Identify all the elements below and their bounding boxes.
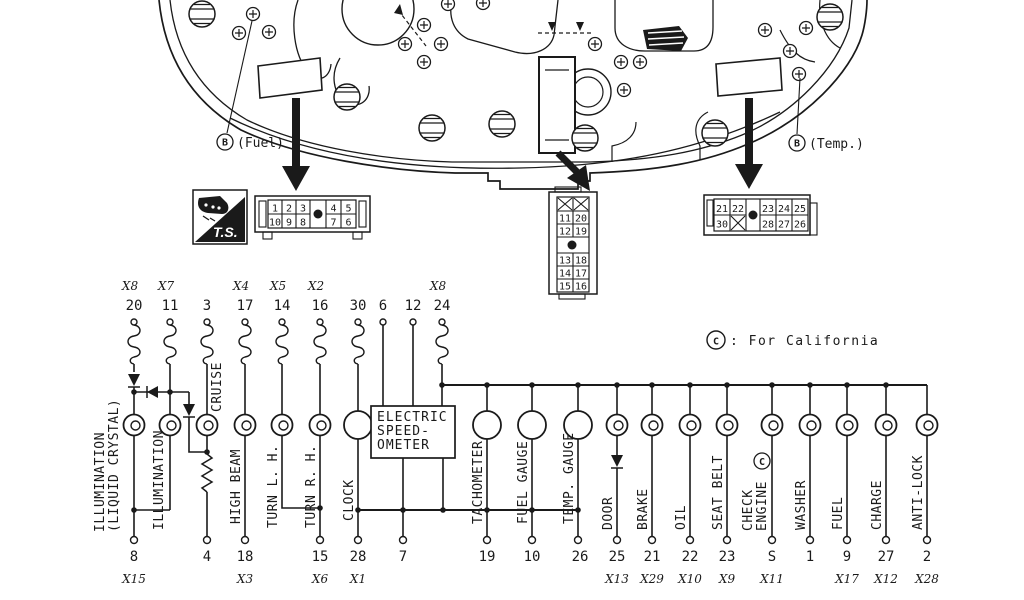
- connector-c-pinout: 21 22 23 24 25 30 28 27 26: [704, 195, 817, 235]
- circuit-label: BRAKE: [636, 488, 651, 530]
- screw-icon: [589, 38, 602, 51]
- pin-cell: 23: [762, 204, 774, 215]
- pin-cell: 27: [778, 220, 790, 231]
- gauge-icon: [344, 411, 372, 439]
- doodle-dot: [211, 205, 214, 208]
- pin-cell: 10: [269, 218, 281, 229]
- bulb-socket-icon: [817, 4, 843, 30]
- pin-cell: 15: [559, 282, 571, 293]
- lamp-icon: [837, 415, 858, 436]
- ts-badge-label: T.S.: [213, 224, 238, 240]
- pin-cell: 21: [716, 204, 728, 215]
- connector-code: X8: [429, 279, 447, 293]
- pin-cell: 12: [559, 227, 571, 238]
- coil-icon: [436, 325, 448, 364]
- california-symbol: C: [713, 337, 719, 348]
- diode-icon: [128, 374, 140, 386]
- circuit-label: TACHOMETER: [471, 441, 486, 524]
- right-connector-opening: [716, 58, 782, 96]
- coil-icon: [276, 325, 288, 364]
- pin-cell: 22: [732, 204, 744, 215]
- speedometer-box: ELECTRIC SPEED- OMETER: [371, 406, 455, 458]
- pin-cell: 3: [300, 204, 306, 215]
- fuel-tag-label: (Fuel): [237, 136, 284, 151]
- connector-code: X7: [157, 279, 175, 293]
- pin-cell: 18: [575, 256, 587, 267]
- lamp-icon: [876, 415, 897, 436]
- pin-number: 4: [203, 549, 211, 565]
- connector-code: X2: [307, 279, 324, 293]
- pin-number: 24: [434, 298, 451, 314]
- bulb-socket-icon: [572, 125, 598, 151]
- screw-icon: [435, 38, 448, 51]
- doodle-dot: [217, 206, 220, 209]
- speedometer-label-line1: ELECTRIC: [377, 410, 448, 425]
- check-engine-marker: C: [759, 457, 765, 468]
- pin-number: 7: [399, 549, 407, 565]
- pin-number: 26: [572, 549, 589, 565]
- pin-number: 6: [379, 298, 387, 314]
- circuit-label: SEAT BELT: [711, 455, 726, 530]
- pin-number: 11: [162, 298, 179, 314]
- bulb-socket-icon: [189, 1, 215, 27]
- pin-cell: 16: [575, 282, 587, 293]
- connector-code: X28: [914, 572, 939, 586]
- screw-icon: [759, 24, 772, 37]
- pin-number: 18: [237, 549, 254, 565]
- screw-icon: [800, 22, 813, 35]
- diode-icon: [183, 404, 195, 416]
- coil-icon: [164, 325, 176, 364]
- resistor-symbol: [202, 454, 212, 492]
- pin-number: 10: [524, 549, 541, 565]
- pin-number: 3: [203, 298, 211, 314]
- pin-cell: 25: [794, 204, 806, 215]
- bottom-pin-labels: 8 X15 4 18 X3 15 X6 28 X1 7 19 10 26 25 …: [121, 549, 939, 586]
- circuit-label: OIL: [674, 505, 689, 530]
- coil-symbols: [128, 325, 448, 364]
- california-note-text: : For California: [730, 334, 879, 349]
- circuit-label: DOOR: [601, 497, 616, 530]
- terminal-circles: [131, 537, 931, 544]
- pin-cell: 13: [559, 256, 571, 267]
- pin-cell: 24: [778, 204, 790, 215]
- pin-number: 22: [682, 549, 699, 565]
- pin-cell: 14: [559, 269, 571, 280]
- fuel-terminal-letter: B: [222, 138, 228, 149]
- circuit-label: CHECK: [741, 489, 756, 531]
- connector-a-foot: [263, 232, 272, 239]
- pin-number: 14: [274, 298, 291, 314]
- temp-terminal-letter: B: [794, 139, 800, 150]
- connector-code: X15: [121, 572, 146, 586]
- pin-number: 16: [312, 298, 329, 314]
- pin-cell: 28: [762, 220, 774, 231]
- circuit-label: (LIQUID CRYSTAL): [107, 399, 122, 532]
- pin-number: 19: [479, 549, 496, 565]
- connector-b-key-dot: [568, 241, 577, 250]
- diode-icon: [147, 386, 158, 398]
- top-pin-circles: [131, 319, 445, 325]
- connector-c-right-foot: [810, 203, 817, 235]
- connector-code: X5: [269, 279, 286, 293]
- pin-cell: 5: [345, 204, 351, 215]
- connector-a-key-dot: [314, 210, 323, 219]
- pin-number: 23: [719, 549, 736, 565]
- pin-number: 1: [806, 549, 814, 565]
- screw-icon: [442, 0, 455, 11]
- lamp-icon: [680, 415, 701, 436]
- lamp-icon: [310, 415, 331, 436]
- wiring-diagram-canvas: B (Fuel) B (Temp.) T.S. 1 2 3 4 5 10 9 8…: [0, 0, 1024, 600]
- lamp-icon: [235, 415, 256, 436]
- circuit-label: ENGINE: [755, 481, 770, 531]
- pin-number: 8: [130, 549, 138, 565]
- bulb-socket-icon: [489, 111, 515, 137]
- bulb-socket-icon: [702, 120, 728, 146]
- circuit-label: CLOCK: [342, 479, 357, 521]
- circuit-label: FUEL: [831, 497, 846, 530]
- lamp-icon: [800, 415, 821, 436]
- circuit-label: CRUISE: [210, 362, 225, 412]
- left-connector-opening: [258, 58, 322, 98]
- screw-icon: [634, 56, 647, 69]
- pin-cell: 11: [559, 214, 571, 225]
- doodle-dot: [204, 203, 207, 206]
- speedometer-label-line2: SPEED-: [377, 424, 430, 439]
- coil-icon: [239, 325, 251, 364]
- connector-b-pinout: 11 20 12 19 13 18 14 17 15 16: [549, 187, 597, 299]
- screw-icon: [793, 68, 806, 81]
- coil-icon: [314, 325, 326, 364]
- connector-code: X1: [349, 572, 366, 586]
- connector-code: X8: [121, 279, 139, 293]
- schematic: ELECTRIC SPEED- OMETER C : For Californi…: [93, 279, 939, 586]
- circuit-label: ANTI-LOCK: [911, 455, 926, 530]
- screw-icon: [618, 84, 631, 97]
- pin-number: 15: [312, 549, 329, 565]
- lamp-icon: [917, 415, 938, 436]
- temp-tag-leader: [797, 78, 800, 134]
- screw-icon: [615, 56, 628, 69]
- bulb-socket-icon: [334, 84, 360, 110]
- coil-icon: [201, 325, 213, 364]
- pin-cell: 8: [300, 218, 306, 229]
- pin-number: 25: [609, 549, 626, 565]
- diode-icon: [611, 455, 623, 467]
- pin-cell: 6: [345, 218, 351, 229]
- pin-cell: 2: [286, 204, 292, 215]
- connector-code: X17: [834, 572, 859, 586]
- connector-code: X9: [718, 572, 736, 586]
- center-connector-housing: [539, 57, 575, 153]
- ts-badge: T.S.: [193, 190, 247, 244]
- pin-cell: 4: [330, 204, 336, 215]
- circuit-label: TEMP. GAUGE: [562, 432, 577, 524]
- connector-code: X4: [232, 279, 249, 293]
- pin-number: 2: [923, 549, 931, 565]
- connector-a-foot: [353, 232, 362, 239]
- pin-cell: 20: [575, 214, 587, 225]
- pin-number: 28: [350, 549, 367, 565]
- lamp-icon: [762, 415, 783, 436]
- circuit-label: ILLUMINATION: [152, 430, 167, 530]
- circuit-label: CHARGE: [870, 480, 885, 530]
- lamp-icon: [197, 415, 218, 436]
- screw-icon: [418, 56, 431, 69]
- connector-code: X6: [311, 572, 329, 586]
- pin-number: 9: [843, 549, 851, 565]
- connector-c-key-dot: [749, 211, 758, 220]
- pin-number: S: [768, 549, 776, 565]
- connector-a-pinout: 1 2 3 4 5 10 9 8 7 6: [255, 196, 370, 239]
- pin-cell: 1: [272, 204, 278, 215]
- pin-cell: 26: [794, 220, 806, 231]
- gauge-opening-right-inner: [573, 77, 603, 107]
- connector-code: X13: [604, 572, 629, 586]
- arrow-to-connector-c: [735, 98, 763, 189]
- california-note: C : For California: [707, 331, 879, 349]
- bulb-hatch-shape: [643, 26, 688, 51]
- gauge-icon: [473, 411, 501, 439]
- connector-code: X29: [639, 572, 664, 586]
- connector-code: X3: [236, 572, 254, 586]
- connector-code: X12: [873, 572, 898, 586]
- lamp-icon: [272, 415, 293, 436]
- pin-number: 17: [237, 298, 254, 314]
- instrument-cluster-rear-view: B (Fuel) B (Temp.): [159, 0, 867, 191]
- circuit-label: WASHER: [794, 480, 809, 530]
- pin-cell: 7: [330, 218, 336, 229]
- screw-icon: [263, 26, 276, 39]
- temp-tag-label: (Temp.): [809, 137, 864, 152]
- screw-icon: [477, 0, 490, 10]
- lamp-icon: [717, 415, 738, 436]
- screw-icon: [247, 8, 260, 21]
- circuit-label: FUEL GAUGE: [516, 441, 531, 524]
- screw-icon: [399, 38, 412, 51]
- pin-cell: 30: [716, 220, 728, 231]
- bulb-socket-icon: [419, 115, 445, 141]
- circuit-label: TURN L. H.: [266, 445, 281, 528]
- lamp-icon: [607, 415, 628, 436]
- connector-code: X11: [759, 572, 784, 586]
- circuit-label: HIGH BEAM: [229, 449, 244, 524]
- coil-icon: [352, 325, 364, 364]
- circuit-labels: ILLUMINATION (LIQUID CRYSTAL) ILLUMINATI…: [93, 362, 926, 532]
- arrow-to-connector-a: [282, 98, 310, 191]
- gauge-icon: [518, 411, 546, 439]
- screw-icon: [418, 19, 431, 32]
- pin-number: 30: [350, 298, 367, 314]
- lamp-icon: [642, 415, 663, 436]
- top-pin-labels: X8 20 X7 11 3 X4 17 X5 14 X2 16 30 6 12 …: [121, 279, 451, 314]
- coil-icon: [128, 325, 140, 364]
- pin-number: 27: [878, 549, 895, 565]
- circuit-label: ILLUMINATION: [93, 432, 108, 532]
- pin-number: 12: [405, 298, 422, 314]
- circuit-label: TURN R. H.: [304, 445, 319, 528]
- screw-icon: [233, 27, 246, 40]
- screw-icon: [784, 45, 797, 58]
- pin-cell: 17: [575, 269, 587, 280]
- pin-number: 21: [644, 549, 661, 565]
- pin-cell: 9: [286, 218, 292, 229]
- lamp-icon: [124, 415, 145, 436]
- speedometer-label-line3: OMETER: [377, 438, 430, 453]
- connector-code: X10: [677, 572, 702, 586]
- pin-number: 20: [126, 298, 143, 314]
- pin-cell: 19: [575, 227, 587, 238]
